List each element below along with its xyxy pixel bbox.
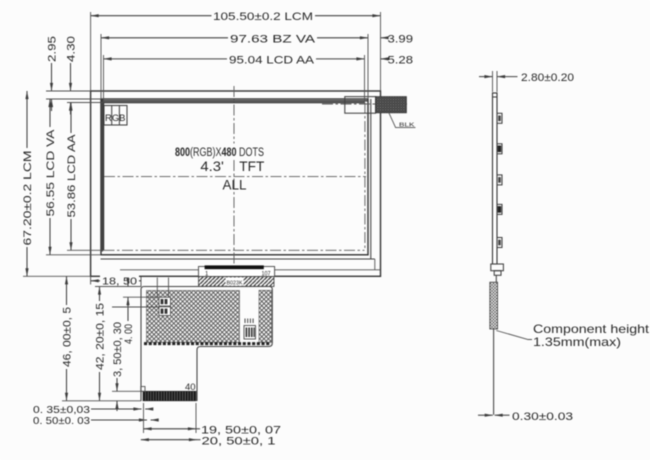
svg-text:BLK: BLK [399, 123, 415, 129]
svg-text:RGB: RGB [105, 113, 126, 124]
svg-text:5.28: 5.28 [388, 55, 414, 67]
svg-text:40: 40 [185, 382, 196, 393]
svg-text:TFT: TFT [239, 159, 264, 174]
svg-text:67.20±0.2 LCM: 67.20±0.2 LCM [22, 151, 34, 246]
svg-text:2.95: 2.95 [47, 36, 59, 62]
svg-text:97.63 BZ VA: 97.63 BZ VA [230, 34, 316, 46]
svg-text:95.04 LCD AA: 95.04 LCD AA [229, 55, 315, 67]
svg-text:B023K: B023K [227, 280, 243, 286]
svg-text:Component height: Component height [533, 322, 650, 336]
svg-text:ALL: ALL [223, 177, 247, 193]
svg-text:0. 50±0. 03: 0. 50±0. 03 [33, 415, 90, 427]
svg-text:0.30±0.03: 0.30±0.03 [512, 411, 573, 423]
svg-text:42, 20±0, 15: 42, 20±0, 15 [95, 303, 107, 370]
svg-text:56.55 LCD VA: 56.55 LCD VA [45, 129, 57, 217]
svg-text:1.35mm(max): 1.35mm(max) [533, 335, 621, 349]
svg-text:20, 50±0, 1: 20, 50±0, 1 [202, 436, 276, 448]
svg-text:46, 00±0, 5: 46, 00±0, 5 [62, 307, 74, 367]
svg-text:3.99: 3.99 [388, 34, 414, 46]
svg-text:105.50±0.2 LCM: 105.50±0.2 LCM [213, 11, 313, 23]
svg-text:4.30: 4.30 [66, 36, 78, 62]
svg-text:4.3': 4.3' [200, 159, 224, 174]
svg-text:18, 50: 18, 50 [102, 276, 137, 288]
svg-text:4. 00: 4. 00 [123, 324, 135, 344]
svg-text:53.86 LCD AA: 53.86 LCD AA [66, 134, 78, 218]
svg-text:2.80±0.20: 2.80±0.20 [521, 72, 574, 84]
svg-text:800(RGB)X480 DOTS: 800(RGB)X480 DOTS [175, 147, 264, 159]
